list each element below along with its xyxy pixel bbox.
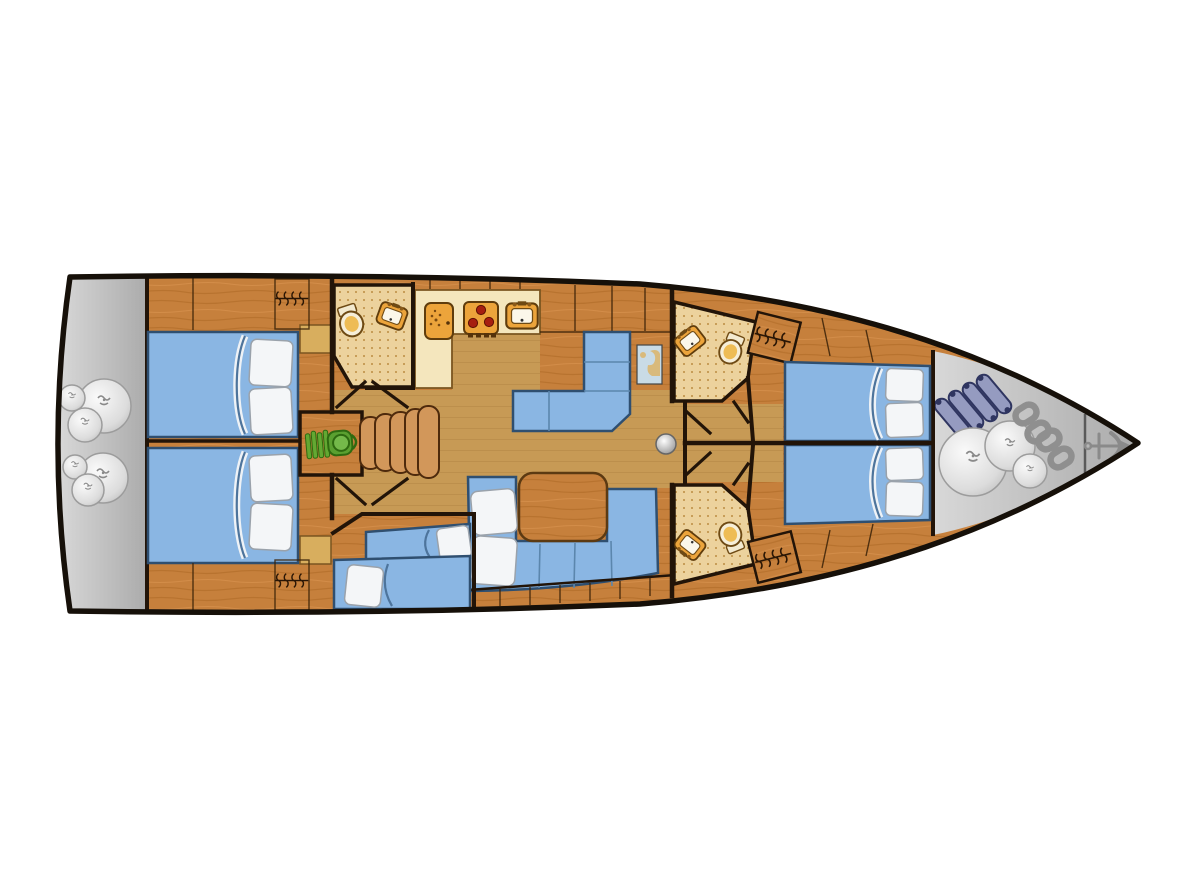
chart-icon xyxy=(637,345,662,384)
step xyxy=(418,406,439,478)
engine-room xyxy=(300,412,362,475)
mast-post xyxy=(656,434,676,454)
pillow xyxy=(249,339,293,387)
pillow xyxy=(885,481,923,516)
yacht-floor-plan: Sailing yacht interior floor plan Top-do… xyxy=(0,0,1187,889)
cushion xyxy=(470,536,517,587)
pillow xyxy=(885,368,923,401)
pillow xyxy=(249,387,293,435)
aft-head xyxy=(334,285,413,387)
hanging-locker xyxy=(748,312,801,363)
stove-icon xyxy=(464,302,498,338)
stern-platform xyxy=(58,277,147,611)
saloon-table xyxy=(519,473,607,541)
sink-icon xyxy=(506,301,538,328)
pillow xyxy=(885,447,923,480)
fridge-icon xyxy=(425,303,453,339)
pillow xyxy=(344,564,384,608)
hanging-locker xyxy=(748,531,801,582)
companionway xyxy=(360,406,439,478)
pillow xyxy=(249,454,293,502)
cushion xyxy=(470,488,518,536)
pillow xyxy=(249,503,293,551)
pillow xyxy=(885,402,923,437)
